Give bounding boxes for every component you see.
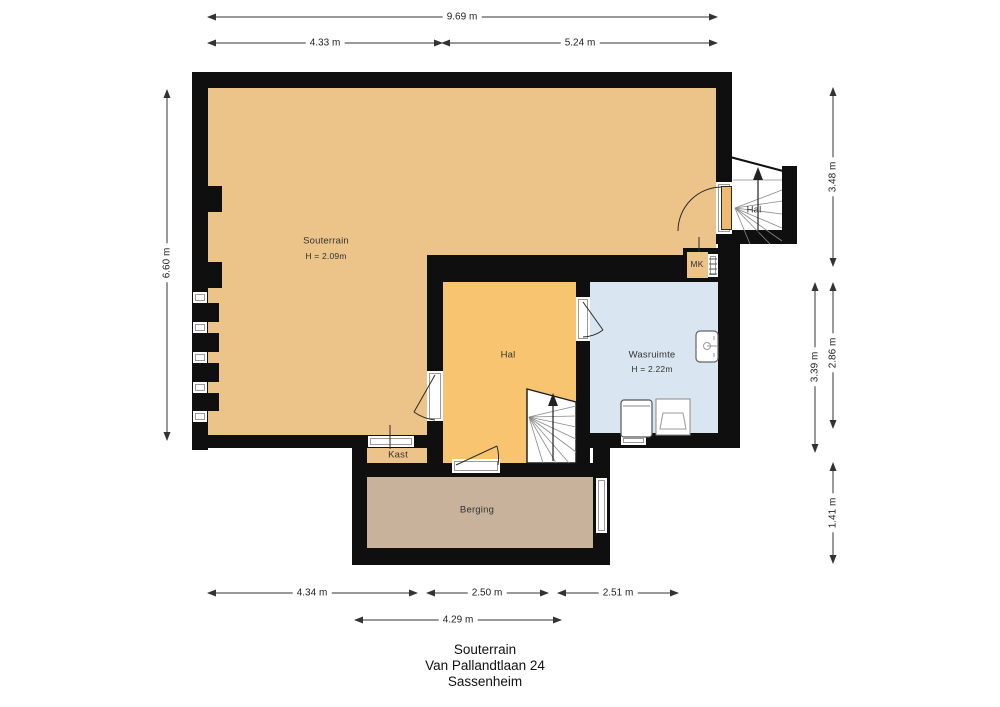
window-icon-left-4 (193, 382, 207, 393)
door-frame-kast (368, 436, 414, 447)
wall-kast-left (352, 443, 367, 565)
wall-berging-bottom (352, 548, 610, 565)
window-icon-left-3 (193, 352, 207, 363)
dim-label-bottom-inner: 4.29 m (439, 615, 478, 626)
wall-wasruimte-bottom (590, 433, 740, 448)
window-icon-left-2 (193, 322, 207, 333)
wall-hal-left (427, 255, 443, 472)
dim-label-bottom-right: 2.51 m (599, 588, 638, 599)
room-label-hal-top: Hal (747, 205, 762, 216)
room-height-souterrain: H = 2.09m (305, 251, 346, 261)
room-height-wasruimte: H = 2.22m (631, 364, 672, 374)
room-souterrain-left (208, 88, 427, 435)
dim-label-top-total: 9.69 m (443, 12, 482, 23)
wall-right-upper (716, 72, 732, 186)
wall-divider-horizontal (427, 255, 718, 282)
dim-label-right-mid-inner: 2.86 m (828, 334, 839, 373)
room-label-souterrain: Souterrain (303, 236, 349, 247)
dim-label-right-top: 3.48 m (828, 158, 839, 197)
vent-window-wasruimte (621, 436, 646, 445)
window-icon-berging-right (596, 478, 607, 533)
door-frame-hal-wasruimte (576, 297, 590, 341)
window-icon-left-1 (193, 292, 207, 303)
dim-label-top-right: 5.24 m (561, 38, 600, 49)
wall-stair-right (782, 166, 797, 244)
wall-left-pier-3 (204, 303, 219, 322)
wall-right-middle (718, 244, 740, 448)
wall-left-pier-4 (204, 333, 219, 352)
dim-label-bottom-left: 4.34 m (293, 588, 332, 599)
wall-left-pier-6 (204, 393, 219, 411)
door-frame-hal-berging (452, 459, 500, 473)
title-block: Souterrain Van Pallandtlaan 24 Sassenhei… (425, 642, 545, 690)
room-label-wasruimte: Wasruimte (629, 350, 676, 361)
dim-label-right-bottom: 1.41 m (828, 494, 839, 533)
wall-left-pier-2 (208, 262, 222, 288)
room-label-hal-middle: Hal (501, 350, 516, 361)
title-city: Sassenheim (425, 674, 545, 690)
title-floor: Souterrain (425, 642, 545, 658)
title-address: Van Pallandtlaan 24 (425, 658, 545, 674)
door-frame-souterrain-hal (427, 371, 443, 421)
door-leaf-souterrain-stairs (721, 186, 732, 230)
dim-label-left-height: 6.60 m (162, 244, 173, 283)
stairs-up-arrow-icon (753, 167, 763, 233)
dim-label-right-mid-outer: 3.39 m (810, 348, 821, 387)
room-hal-middle (443, 282, 576, 463)
dim-label-bottom-mid: 2.50 m (468, 588, 507, 599)
window-icon-left-5 (193, 411, 207, 422)
floor-plan: Souterrain H = 2.09m Hal Hal Wasruimte H… (0, 0, 1000, 707)
wall-left-pier-1 (208, 186, 222, 212)
room-label-berging: Berging (460, 505, 494, 516)
room-label-kast: Kast (388, 450, 408, 461)
meter-cabinet-icon (708, 254, 718, 277)
wall-left-pier-5 (204, 363, 219, 382)
room-label-mk: MK (690, 259, 703, 269)
wall-top (192, 72, 732, 88)
dim-label-top-left: 4.33 m (306, 38, 345, 49)
